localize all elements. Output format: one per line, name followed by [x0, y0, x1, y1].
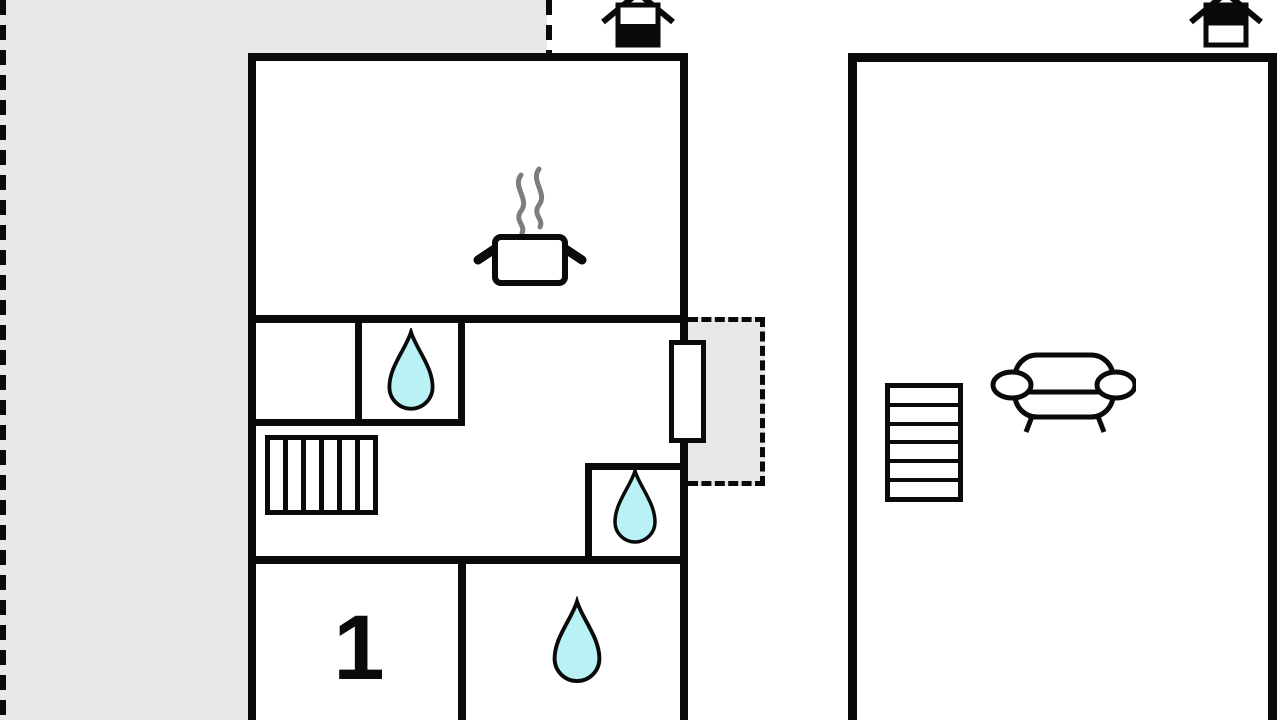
- floor-plan-canvas: 1: [0, 0, 1280, 720]
- wall-bedroom-right: [458, 564, 466, 720]
- house-upper-floor-icon: [1186, 0, 1266, 48]
- sofa-icon: [990, 348, 1136, 436]
- water-drop-icon-bathroom-lower: [549, 596, 605, 690]
- terrace-area: [0, 0, 250, 720]
- terrace-dashed-border-left: [0, 0, 6, 720]
- staircase-upper-floor: [885, 383, 963, 502]
- water-drop-icon-bathroom-upper: [384, 328, 438, 416]
- kitchen-pot-icon: [470, 163, 590, 293]
- wall-bathroom-upper-bottom: [256, 419, 465, 426]
- wall-bathroom-mid-left: [585, 463, 592, 556]
- wall-bathroom-upper-right: [458, 323, 465, 419]
- house-ground-floor-icon: [598, 0, 678, 48]
- water-drop-icon-bathroom-mid: [610, 466, 660, 550]
- door: [669, 340, 706, 443]
- terrace-dashed-border-right: [546, 0, 552, 53]
- room-1-label: 1: [299, 602, 419, 694]
- wall-smallroom-right: [355, 323, 362, 419]
- wall-kitchen-bottom: [248, 315, 688, 323]
- terrace-area-top-strip: [250, 0, 547, 53]
- wall-hall-bottom: [248, 556, 688, 564]
- staircase-ground-floor: [265, 435, 378, 515]
